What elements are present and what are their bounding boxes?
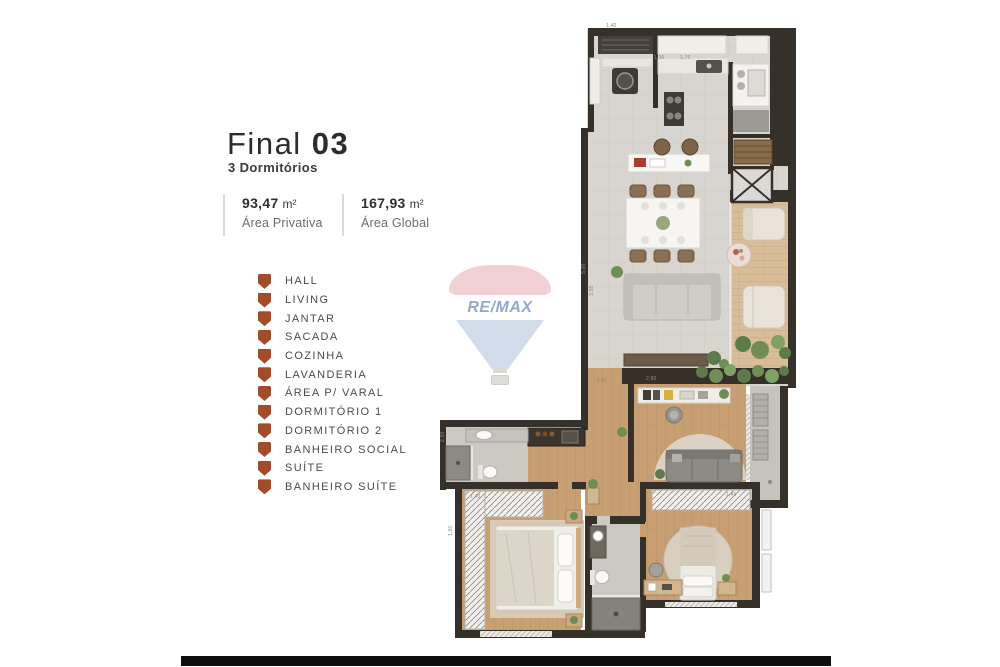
page-title: Final03 [227, 126, 349, 162]
svg-text:1,60: 1,60 [448, 525, 454, 536]
dining-chair [654, 250, 670, 262]
dining-chair [678, 185, 694, 197]
side-table [718, 582, 736, 595]
dining-chair [654, 185, 670, 197]
closet [465, 491, 485, 629]
legend-marker-icon [258, 461, 271, 476]
window [665, 602, 737, 607]
area-global-value: 167,93 [361, 195, 406, 211]
balcony-glass-door [729, 202, 731, 368]
legend-item-area-varal: ÁREA P/ VARAL [258, 384, 407, 403]
svg-text:5,00: 5,00 [581, 263, 587, 274]
legend-marker-icon [258, 367, 271, 382]
legend-marker-icon [258, 405, 271, 420]
page-title-number: 03 [312, 126, 349, 161]
legend-item-dormitorio-2: DORMITÓRIO 2 [258, 422, 407, 441]
area-privativa-unit: m² [283, 197, 297, 211]
pillow [558, 570, 573, 602]
legend-marker-icon [258, 479, 271, 494]
sink [476, 431, 492, 440]
laundry-counter [602, 58, 652, 67]
legend-marker-icon [258, 274, 271, 289]
svg-text:2,50: 2,50 [440, 431, 446, 442]
dining-chair [630, 250, 646, 262]
room-legend: HALL LIVING JANTAR SACADA COZINHA LAVAND… [258, 272, 407, 496]
svg-text:3,00: 3,00 [596, 378, 607, 384]
plant [611, 266, 623, 278]
svg-text:1,49: 1,49 [726, 492, 737, 498]
chair [649, 563, 663, 577]
page: Final03 3 Dormitórios 93,47m² Área Priva… [0, 0, 1000, 667]
pillow [683, 587, 713, 597]
tv-console [624, 354, 708, 366]
legend-item-hall: HALL [258, 272, 407, 291]
window [762, 510, 771, 550]
svg-text:1,40: 1,40 [470, 494, 481, 500]
stool [654, 139, 670, 155]
plant [735, 336, 751, 352]
area-global-label: Área Global [361, 216, 429, 230]
legend-marker-icon [258, 442, 271, 457]
room-suite [465, 491, 584, 637]
lounge-chair [743, 286, 785, 328]
tall-cabinet [590, 58, 600, 104]
legend-item-banheiro-social: BANHEIRO SOCIAL [258, 440, 407, 459]
dining-chair [630, 185, 646, 197]
svg-text:1,40: 1,40 [606, 23, 617, 29]
legend-marker-icon [258, 293, 271, 308]
svg-text:1,75: 1,75 [680, 55, 691, 61]
legend-marker-icon [258, 423, 271, 438]
pillow [683, 576, 713, 586]
window [762, 554, 771, 592]
page-title-regular: Final [227, 126, 302, 161]
legend-item-suite: SUÍTE [258, 459, 407, 478]
legend-marker-icon [258, 311, 271, 326]
legend-item-lavanderia: LAVANDERIA [258, 365, 407, 384]
toilet [590, 570, 595, 585]
sink [593, 531, 603, 541]
vanity [466, 429, 528, 442]
legend-item-living: LIVING [258, 291, 407, 310]
window [746, 394, 750, 480]
legend-marker-icon [258, 349, 271, 364]
plant [707, 351, 721, 365]
legend-marker-icon [258, 386, 271, 401]
stool [682, 139, 698, 155]
condenser-unit [753, 430, 768, 460]
legend-item-jantar: JANTAR [258, 309, 407, 328]
dining-chair [678, 250, 694, 262]
footer-bar [181, 656, 831, 666]
legend-item-cozinha: COZINHA [258, 347, 407, 366]
upper-cabinets [658, 36, 726, 54]
plant [617, 427, 627, 437]
window [480, 631, 552, 637]
hall-shelf [587, 488, 599, 504]
toilet [478, 465, 483, 479]
area-privativa-value: 93,47 [242, 195, 279, 211]
page-subtitle: 3 Dormitórios [228, 160, 318, 175]
area-privativa-label: Área Privativa [242, 216, 323, 230]
legend-item-banheiro-suite: BANHEIRO SUÍTE [258, 478, 407, 497]
svg-text:2,80: 2,80 [646, 376, 657, 382]
svg-text:3,55: 3,55 [589, 285, 595, 296]
round-table [727, 243, 751, 267]
legend-item-dormitorio-1: DORMITÓRIO 1 [258, 403, 407, 422]
legend-item-sacada: SACADA [258, 328, 407, 347]
area-privativa: 93,47m² Área Privativa [223, 194, 323, 236]
condenser-unit [753, 394, 768, 426]
floor-plan: 1,40 1,36 1,75 5,00 3,55 3,00 2,80 2,50 … [440, 22, 805, 655]
stove [664, 92, 684, 126]
svg-text:1,36: 1,36 [654, 55, 665, 61]
area-global: 167,93m² Área Global [342, 194, 429, 236]
area-global-unit: m² [410, 197, 424, 211]
headboard [576, 528, 581, 608]
gray-counter [733, 110, 769, 132]
pillow [558, 534, 573, 566]
legend-marker-icon [258, 330, 271, 345]
shaft [732, 168, 772, 202]
room-jantar [626, 185, 700, 262]
